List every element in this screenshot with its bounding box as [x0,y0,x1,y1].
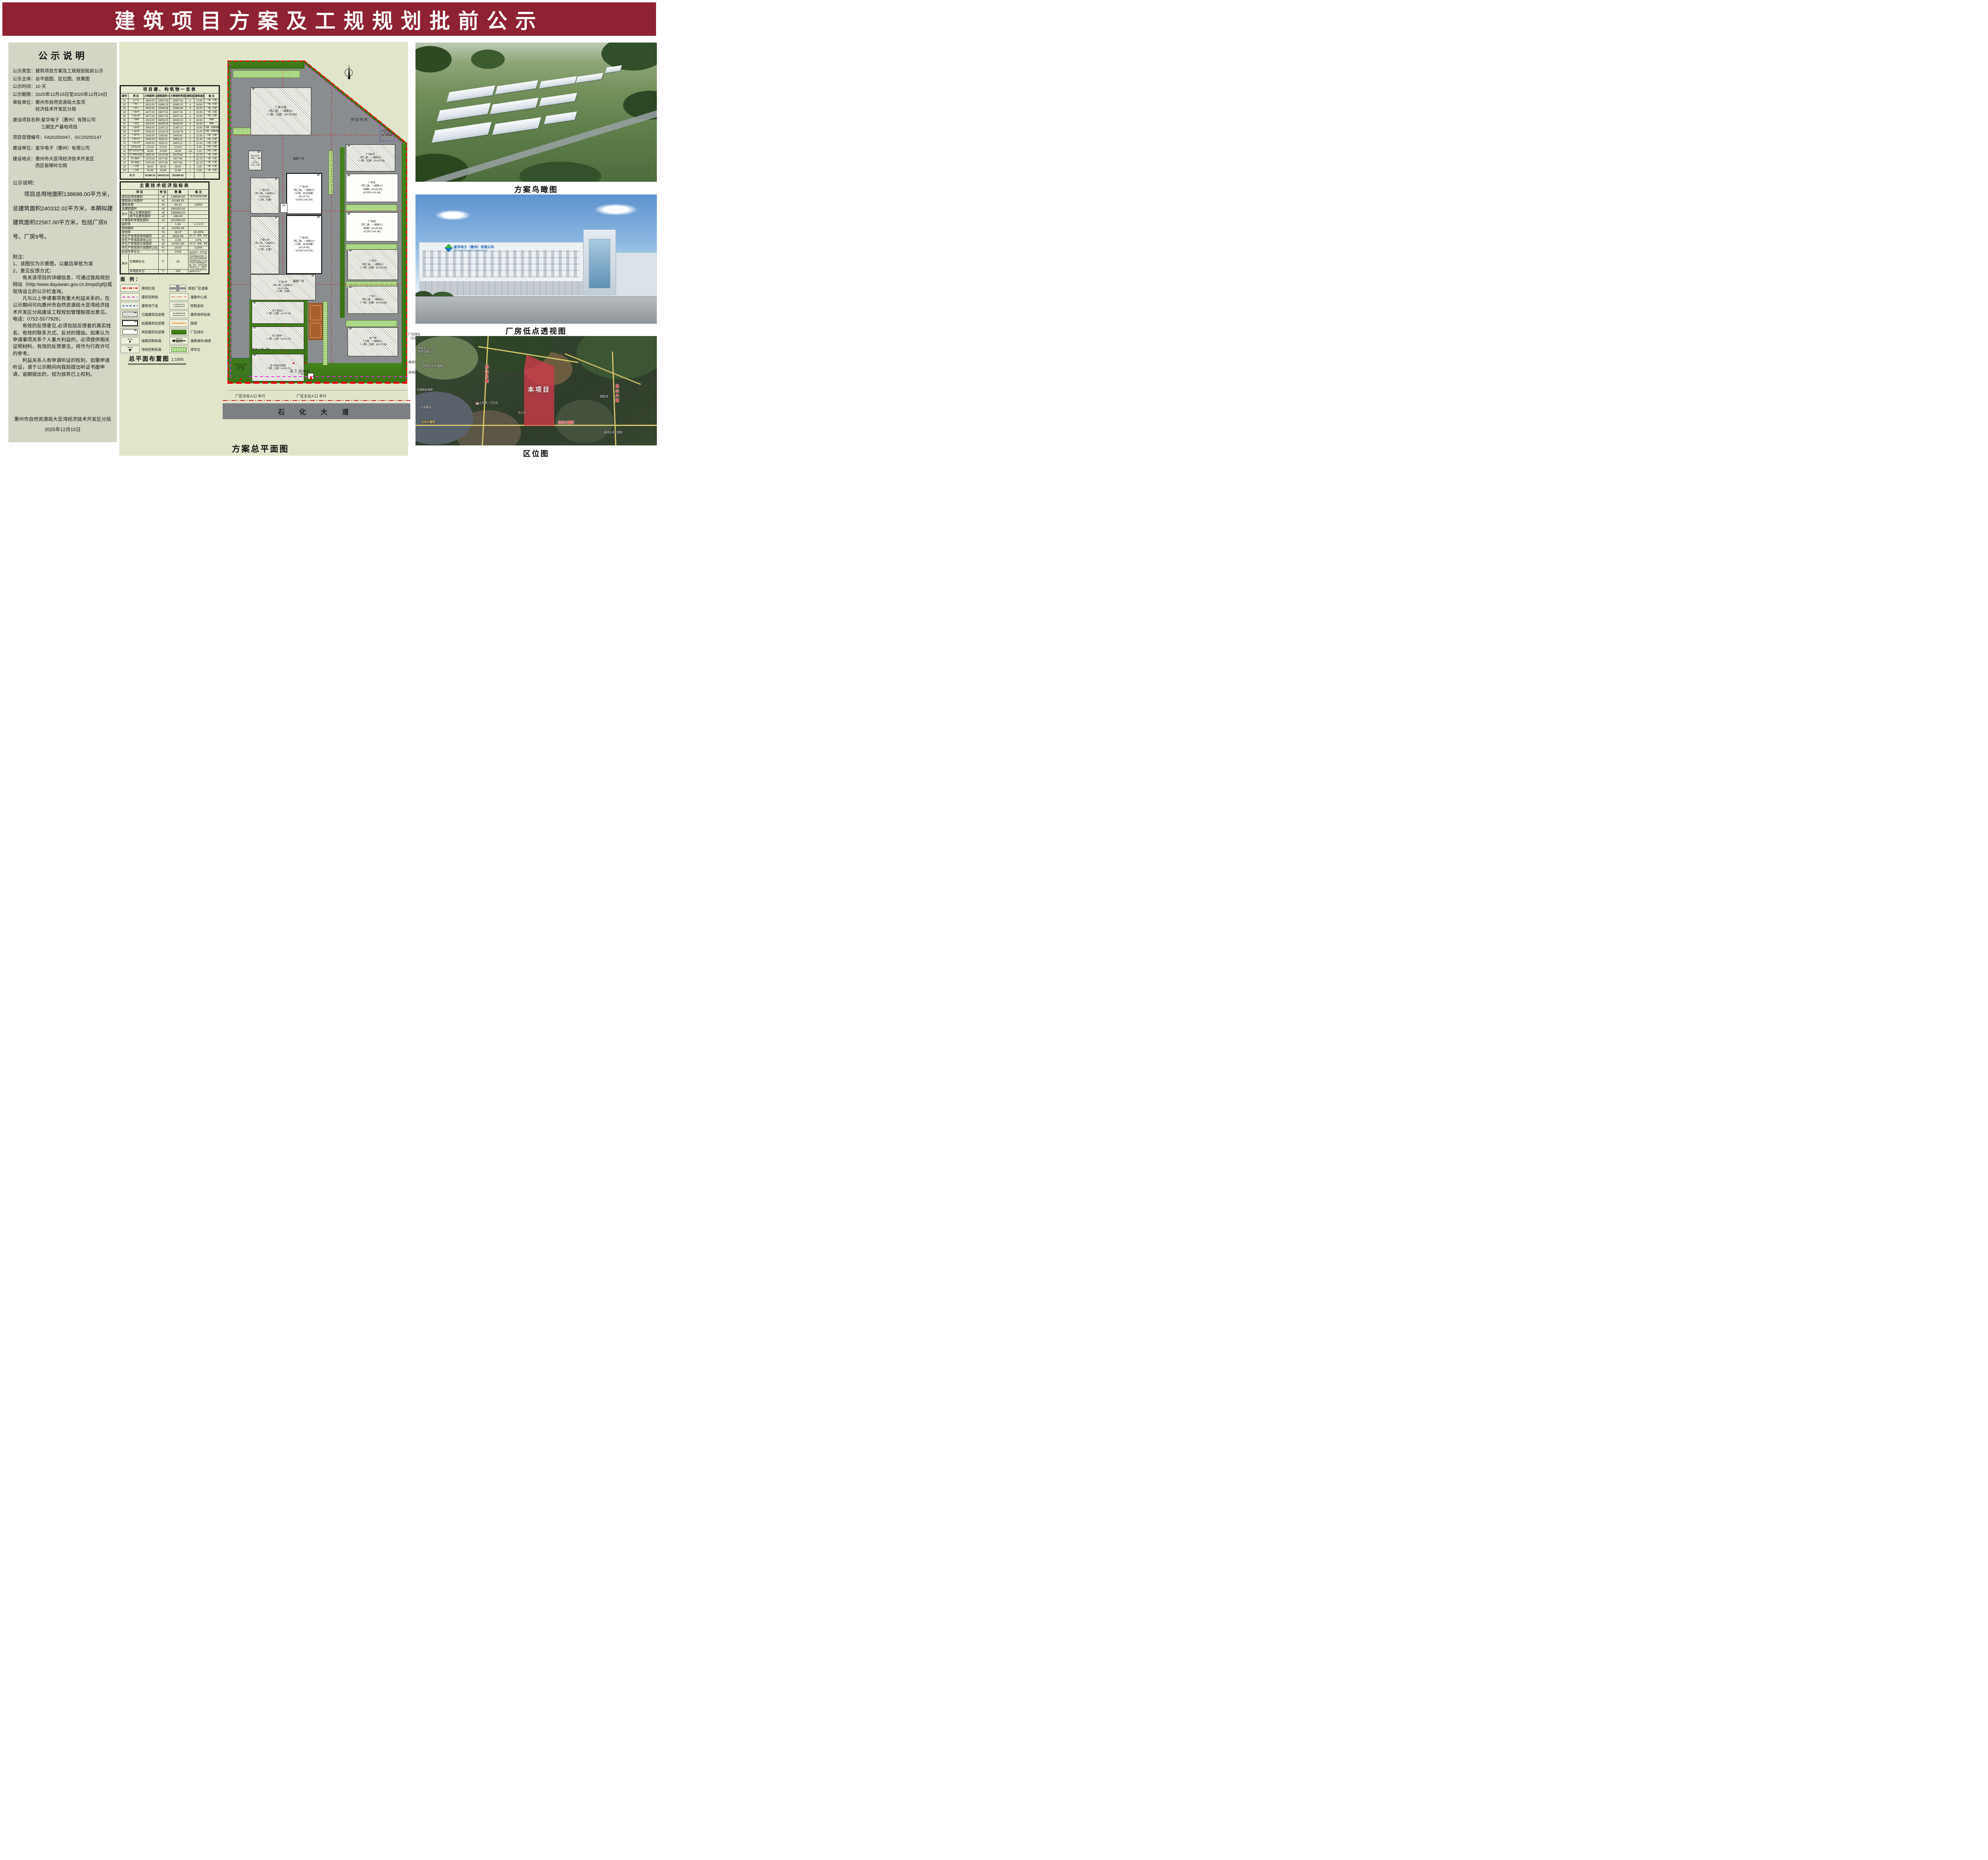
legend-label: 控制坐标 [190,303,204,308]
proposed-building-icon: 1F [120,319,140,327]
page-title: 建筑项目方案及工规规划批前公示 [115,4,544,34]
building-row: 13 化学品仓库 273.00 273.00 273.00 1 5.00 二期，… [121,146,219,150]
legend-item-site-elev: 40.00场地控制标高 [120,345,166,354]
col-unit: 单 位 [159,190,168,195]
cell-name: 化学品仓库 [128,146,144,150]
cell-gfa: 273.00 [157,146,170,150]
ind-label: 非生产性用房计容面积占比 [121,246,159,250]
cell-floors: 8 [186,118,194,122]
cell-note: 一期，已建 [204,165,219,169]
building-main-factory: 4F主厂房 （丁类，一级耐火） （一期，已建）(H=17.85) [348,327,398,356]
floor-tag: 4F [134,312,137,315]
cell-no: 04 [121,111,128,115]
ind-value: 138696.00 [168,195,188,199]
legend-label: 拟建建筑及层数 [142,321,165,326]
field-site: 建设地点：惠州市大亚湾经济技术开发区 西区板樟岭北侧 [13,156,113,170]
issue-date: 2025年12月15日 [8,426,117,433]
cell-far-area: 18597.63 [170,99,186,103]
field-value: 星华电子（惠州）有限公司 [35,145,90,152]
cell-floors: 1 [186,165,194,169]
cell-height: 20.00 [194,107,204,111]
map-road-label: 龙山六路 [615,384,620,403]
reserved-land-label: 预留用地 [345,117,374,122]
planned-building-icon: 4F [120,328,140,336]
cell-floors: 2 [186,130,194,134]
note-line: 有效的反馈意见,必须包括反馈者的真实姓名、有效的联系方式、反对的理由。如果认为申… [13,323,113,357]
ind-note: ≤15% [188,246,209,250]
entrance-marker: ▲ [304,361,307,365]
indicators-header: 项 目 单 位 数 量 备 注 [121,190,209,195]
cell-name: 厂房6号 [128,111,144,115]
col-far-area: 计算容积率面积㎡ [170,93,186,99]
cell-footprint: 5493.00 [144,126,157,130]
building-row: 02 厂房二 4523.00 18360.23 18360.23 4 19.65… [121,103,219,107]
cell-far-area: 51.66 [170,169,186,173]
total-empty-3 [204,173,219,179]
ind-row: 建筑物占地面积㎡61189.35 [121,199,209,203]
building-row: 08 厂房8号 5493.00 11367.22 11367.22 2 14.6… [121,126,219,130]
cell-note: 二期，已建 [204,142,219,146]
field-value: 10 天 [35,84,46,91]
cell-no: 16 [121,157,128,161]
cell-far-area: 11219.78 [170,130,186,134]
ind-label: 无障碍车位 [128,254,158,269]
total-empty-2 [194,173,204,179]
building-factory-5: 8F厂房五 （丙二类，一级耐火） （四期）(H=43.90) ±0.000 (=… [346,174,398,202]
cell-height: 3.10 [194,149,204,153]
building-row: 15 员工宿舍及食堂 3695.00 19178.82 19178.82 7 2… [121,153,219,157]
field-period: 公示期限：2025年12月15日至2025年12月24日 [13,91,113,99]
col-no: 编号 [121,93,128,99]
cloud [435,210,471,220]
field-duration: 公示时间：10 天 [13,84,113,91]
logo-en: Star China Electronic (Hui Zhou) Ltd [454,249,494,252]
site-plan: 4F厂房10号 （丙二类，一级耐火） （一期，已建）(H=20.95) 1F化学… [227,60,407,388]
legend-label: 停车位 [190,347,200,352]
cell-footprint: 3200.00 [144,134,157,138]
cell-no: 08 [121,126,128,130]
ind-note: 合计约208.04亩 [188,195,209,199]
slope-icon: 道路纵坡道路长度 [169,337,188,344]
field-value: 惠州市大亚湾经济技术开发区 西区板樟岭北侧 [35,156,94,170]
site-plan-caption-text: 总平面布置图 [129,356,169,362]
road-name: 石 化 大 道 [278,406,355,416]
building-label: 厂房五 （丙二类，一级耐火） （四期）(H=43.90) ±0.000 (=41… [359,181,384,194]
issuing-org: 惠州市自然资源局大亚湾经济技术开发区分局 [8,415,117,422]
legend-item-slope: 道路纵坡道路长度道路坡向/坡度 [169,336,213,345]
map-road-diagonal [565,353,641,385]
building-row: 09 厂房9号 5400.00 11219.78 11219.78 2 14.7… [121,130,219,134]
cell-floors: 1 [186,146,194,150]
ind-unit [159,223,168,227]
parking-icon [169,346,188,353]
buildings-table: 项目建、构筑物一览表 编号 项 目 占地面积㎡ 建筑面积㎡ 计算容积率面积㎡ 建… [120,85,220,180]
red-boundary-left [227,60,229,383]
factory-logo: 星华电子（惠州）有限公司Star China Electronic (Hui Z… [446,245,494,252]
ind-value: 5932.66 [168,234,188,238]
ind-label: 计算容积率建筑面积 [121,219,159,223]
control-line-bottom [249,376,407,377]
ind-label: 规划总用地面积 [121,195,159,199]
cell-height: 5.00 [194,146,204,150]
ind-value: 37421.80 [168,242,188,246]
floor-tag: 1F [274,179,278,181]
cell-height: 43.90 [194,118,204,122]
basketball-court [309,303,323,340]
cell-name: 员工宿舍二 [128,161,144,165]
total-gfa: 240332.02 [157,173,170,179]
perspective-image: 星华电子（惠州）有限公司Star China Electronic (Hui Z… [415,194,657,324]
legend-label: 用地红线 [142,286,155,291]
legend-item-fence: 围墙 [169,319,213,327]
road-centerline [223,400,410,401]
control-coords-icon: X=2613453.570Y=39448814.861 [169,302,188,309]
ind-value: 44.12 [168,203,188,207]
building-label: 地下生活/生产/消防 水池及泵房 （二期，已建） [233,363,247,371]
cloud [594,204,638,216]
cell-footprint: 38.69 [144,149,157,153]
ind-row: 总建筑面积㎡240332.02 [121,207,209,211]
cell-note: 二期，已建 [204,146,219,150]
legend-item-parking: 停车位 [169,345,213,354]
floor-tag: 8F [347,213,351,216]
cell-no: 09 [121,130,128,134]
cell-far-area: 8453.12 [170,142,186,146]
building-row: 11 厂房11号 4200.00 4253.12 8453.12 1 11.20… [121,138,219,142]
floor-tag: 4F [347,145,351,148]
building-row: 06 厂房四 4523.00 36435.00 36435.00 8 43.90… [121,118,219,122]
building-row: 07 厂房五 4523.00 36435.00 36435.00 8 43.90… [121,122,219,126]
building-factory-4: 8F厂房四 （丙二类，一级耐火） （四期）(H=43.90) ±0.000 (=… [346,212,398,241]
field-value: FA20250047、GC20250147 [45,134,102,142]
legend-label: 建筑控制线 [142,295,158,299]
building-dorm-2: 7F员工宿舍二 （一期，已建）(H=22.75) [252,301,304,324]
ind-row: 非生产性用房用地占比%4.28≤7% [121,238,209,242]
perspective-caption: 厂房低点透视图 [415,325,657,336]
cell-gfa: 18597.63 [157,99,170,103]
underground-water-pool: 地下生活/生产/消防 水池及泵房 （二期，已建） [231,358,250,376]
red-boundary-right [406,143,407,383]
ind-row: 规划总用地面积㎡138696.00合计约208.04亩 [121,195,209,199]
col-floors: 建筑层数 [186,93,194,99]
col-note: 备 注 [188,190,209,195]
cell-name: 地下生活/生产/消防水池及泵房 [128,149,144,153]
cell-floors: 7 [186,157,194,161]
total-empty-1 [186,173,194,179]
site-elevation-icon: 40.00 [120,346,140,353]
ind-row: 非生产性用房计容面积占比%14.87≤15% [121,246,209,250]
ind-note: 1.2-2.0 [188,223,209,227]
side-wing [616,253,657,295]
building-factory-2: 4F厂房二 （丙二类，一级耐火） （一期，已建）(H=19.65) [348,286,398,314]
parking-note: 地上停车位；生产区设施停车位＞0.3个/100平方米建筑面积计算；行政办公及生活… [188,250,209,274]
ind-row: 非生产性用房计容面积㎡37421.80含门卫、宿舍、食堂 [121,242,209,246]
ind-value: 22293.46 [168,226,188,230]
ind-unit: 个 [159,270,168,274]
ind-label: 地上总建筑面积 [128,211,158,215]
cell-note: 一期，已建 [204,169,219,173]
field-value: 2025年12月15日至2025年12月24日 [35,91,107,99]
logo-cn: 星华电子（惠州）有限公司 [454,245,494,249]
field-builder: 建设单位：星华电子（惠州）有限公司 [13,145,113,152]
cell-gfa: 3240.63 [157,134,170,138]
ind-unit: ㎡ [159,219,168,223]
legend-title: 图 例： [120,276,213,282]
cell-floors: 4 [186,99,194,103]
cell-far-area: 6440.63 [170,134,186,138]
ind-note: ≥30% [188,203,209,207]
road-axis [331,70,332,363]
cell-footprint: 4523.00 [144,122,157,126]
building-factory-11: 1F厂房11号 （丙二类，二级耐火） H=11.20m （二期，已建） [250,178,279,214]
cell-no: 11 [121,138,128,142]
site-plan-scale: 1:1000 [171,358,184,362]
parking-strip [346,204,397,212]
floor-tag: 7F [253,355,256,357]
floor-tag: 2F [316,174,320,177]
corridor-label: 连廊 [280,203,287,212]
floor-tag: 1F [134,321,137,323]
aerial-view-image [415,43,657,182]
cell-height: 17.85 [194,99,204,103]
building-chem-warehouse: 1F化学品仓库 （甲类，一级耐火） H=5.00m （二期，已建） [248,151,262,170]
legend-label: 厂区绿化 [190,330,204,334]
cell-gfa: 36435.00 [157,122,170,126]
road-centerline-icon [169,293,188,301]
cell-note: 一期，已建 [204,115,219,119]
location-caption: 区位图 [415,448,657,459]
map-road-label: 石化大道西 [421,421,435,424]
ind-value: 61189.35 [168,199,188,203]
cell-no: 17 [121,161,128,165]
cell-height: 11.10 [194,142,204,146]
building-dorm-1: 7F员工宿舍一 （一期，已建）(H=22.75) [252,327,304,350]
parking-strip [346,320,397,327]
building-factory-3: 4F厂房三 （丙二类，一级耐火） （一期，已建）(H=20.00) [348,249,398,280]
ind-value: 20 [168,254,188,269]
floor-tag: 7F [253,327,256,330]
legend-item-coords: X=2613453.570Y=39448814.861控制坐标 [169,301,213,310]
parking-strip [323,301,328,365]
red-boundary-bottom [227,382,407,384]
floor-tag: 4F [349,250,352,253]
notes-list: 1、该图仅为示意图，以最后审批为准2、意见反馈方式： 有关该项目的详细信息，可通… [13,260,113,378]
cell-floors: 4 [186,107,194,111]
field-label: 建设地点： [13,156,35,170]
buildings-table-title: 项目建、构筑物一览表 [121,86,219,93]
note-line: 2、意见反馈方式： [13,268,113,274]
cell-note: 三期，本期拟建 [204,130,219,134]
cell-note: 一期，已建 [204,153,219,157]
note-line: 利益关系人有申请听证的权利，如需申请听证，请于公示期间向我局提出听证书面申请，逾… [13,357,113,378]
cell-far-area: 19178.82 [170,153,186,157]
ind-label: 建筑系数 [121,203,159,207]
total-far-area: 251596.02 [170,173,186,179]
cell-far-area: 19877.91 [170,115,186,119]
cell-far-area: 11367.22 [170,126,186,130]
legend-label: 建筑地下室 [142,303,158,308]
cell-floors: -1/1 [186,149,194,153]
legend-item-red-line: 用地红线 [120,284,166,292]
cell-gfa: 19178.82 [157,153,170,157]
cell-note: 四期 [204,122,219,126]
cell-far-area: 18344.98 [170,107,186,111]
col-note: 备 注 [204,93,219,99]
ind-unit: ㎡ [159,234,168,238]
ind-qizhong: 其中 [121,211,129,219]
cell-height: 22.75 [194,161,204,165]
ind-unit: ㎡ [159,211,168,215]
cell-no: 03 [121,107,128,111]
cell-no: 14 [121,149,128,153]
ind-unit: % [159,238,168,242]
ind-note: 含门卫、宿舍、食堂 [188,242,209,246]
field-value: 总平面图、区位图、效果图 [35,76,90,83]
cell-height: 11.00 [194,134,204,138]
ind-row: 机动车停车位个1018地上停车位；生产区设施停车位＞0.3个/100平方米建筑面… [121,250,209,254]
ind-value: 14.87 [168,246,188,250]
notice-info-panel: 公示说明 公示类型：建筑项目方案及工规规划批前公示 公示主体：总平面图、区位图、… [8,43,117,442]
col-height: 建筑高度m [194,93,204,99]
legend-label: 道路中心线 [190,295,207,299]
field-label: 建设单位： [13,145,35,152]
cell-floors: 4 [186,115,194,119]
col-qty: 数 量 [168,190,188,195]
field-label: 公示期限： [13,91,35,99]
cell-gfa: 19877.91 [157,111,170,115]
aerial-caption: 方案鸟瞰图 [415,184,657,194]
cell-note: 一期，已建 [204,161,219,165]
red-line-icon [120,284,140,292]
legend-label: 规划建筑及层数 [142,330,165,334]
entrance-tower [583,229,616,295]
ind-label: 总建筑面积 [121,207,159,211]
map-road-label: 龙山五路 [484,365,489,384]
ind-value: 1018 [168,250,188,254]
cell-footprint: 4200.00 [144,142,157,146]
cell-footprint: 4200.00 [144,138,157,142]
project-site-label: 本项目 [528,384,550,394]
cell-name: 厂房四 [128,118,144,122]
cell-floors: 7 [186,153,194,157]
building-label: 主厂房 （丁类，一级耐火） （一期，已建）(H=17.85) [359,337,387,347]
map-poi: 东部蔚蓝海岸 [417,389,433,392]
legend-item-proposed: 1F拟建建筑及层数 [120,319,166,327]
field-label: 建设项目名称: [13,117,41,131]
building-row: 14 地下生活/生产/消防水池及泵房 38.69 374.69 38.69 -1… [121,149,219,153]
cell-no: 06 [121,118,128,122]
cell-far-area: 8453.12 [170,138,186,142]
floor-tag: 8F [347,175,351,177]
building-row: 10 厂房7号 3200.00 3240.63 6440.63 1 11.00 … [121,134,219,138]
cell-floors: 4 [186,103,194,107]
cell-footprint: 36.00 [144,165,157,169]
ind-note [188,199,209,203]
cell-name: 员工宿舍及食堂 [128,153,144,157]
building-label: 厂房11号 （丙二类，二级耐火） H=11.20m （二期，已建） [253,189,277,202]
cell-far-area: 19877.91 [170,111,186,115]
cell-height: 43.90 [194,122,204,126]
side-entrance-label: 厂区次出入口 车行 [235,393,265,398]
building-row: 01 主厂房 4606.00 18597.63 18597.63 4 17.85… [121,99,219,103]
cell-floors: 1 [186,142,194,146]
cell-footprint: 3695.00 [144,153,157,157]
cell-footprint: 4606.00 [144,99,157,103]
ind-label: 机动车停车位 [121,250,159,254]
cell-gfa: 4253.12 [157,138,170,142]
map-poi: 天润嘉园 [420,406,431,409]
legend-item-basement: 建筑地下室 [120,301,166,310]
ind-label: 绿地率 [121,230,159,234]
legend-label: 围墙 [190,321,197,326]
window-grid [423,250,579,277]
cell-no: 15 [121,153,128,157]
description-text: 项目总用地面积138696.00平方米，总建筑面积240332.02平方米，本期… [13,188,113,244]
field-value: 惠州市自然资源局大亚湾 经济技术开发区分局 [35,99,85,113]
building-dorm-canteen: 7F员工宿舍及食堂 （一期，已建）(H=22.75) [252,354,304,381]
ind-row: 绿地率%16.0715-20% [121,230,209,234]
cell-height: 20.95 [194,111,204,115]
plant-road-icon [169,285,186,292]
dimension-line [227,390,407,391]
cell-floors: 4 [186,111,194,115]
floor-tag: 1F [274,217,278,220]
cell-height: 14.70 [194,130,204,134]
cell-gfa: 9077.66 [157,157,170,161]
col-item: 项 目 [128,93,144,99]
cell-no: 19 [121,169,128,173]
cell-no: 12 [121,142,128,146]
cell-footprint: 4523.00 [144,103,157,107]
ind-value: 4.28 [168,238,188,242]
building-row: 03 厂房三 4523.00 18344.98 18344.98 4 20.00… [121,107,219,111]
cell-height: 20.95 [194,115,204,119]
cell-floors: 7 [186,161,194,165]
legend-item-road-elev: 40.65道路控制标高 [120,336,166,345]
cell-footprint: 4523.00 [144,107,157,111]
building-label: 厂房三 （丙二类，一级耐火） （一期，已建）(H=20.00) [359,260,387,270]
cell-gfa: 11219.78 [157,130,170,134]
cell-height: 3.35 [194,169,204,173]
fence-icon [169,319,188,327]
building-row: 04 厂房6号 4877.00 19877.91 19877.91 4 20.9… [121,111,219,115]
cell-note: 一期，已建 [204,103,219,107]
building-row: 18 门卫室 36.00 36.00 36.00 1 3.35 一期，已建 [121,165,219,169]
ind-value: 336.00 [168,215,188,219]
ind-unit: % [159,246,168,250]
field-approver: 审批单位：惠州市自然资源局大亚湾 经济技术开发区分局 [13,99,113,113]
cell-name: 厂房12号 [128,142,144,146]
legend: 图 例： 用地红线 建筑控制线 建筑地下室 4F已建建筑及层数 1F拟建建筑及层… [120,276,213,354]
ind-label: 绿地面积 [121,226,159,230]
slope-bottom-text: 道路长度 [176,341,182,343]
floor-elevation-icon: ±0.000=40.30 [169,311,188,318]
ind-label: 非生产性用房用地面积 [121,234,159,238]
floor-tag: 2F [316,216,320,219]
cell-no: 18 [121,165,128,169]
cell-note: 二期，已建 [204,138,219,142]
building-label: 厂房8号 （丙二类，一级耐火） （三期、本次拟建） (H=14.60) ±0.0… [292,237,316,253]
building-label: 厂房12号 （丙二类，二级耐火） H=11.10m （二期，已建） [253,239,277,251]
cell-floors: 1 [186,138,194,142]
cell-far-area: 9077.66 [170,157,186,161]
cell-name: 厂房二 [128,103,144,107]
cell-name: 员工宿舍一 [128,157,144,161]
clinic-cross-icon: ✚ [476,402,479,404]
ind-value: 239996.02 [168,211,188,215]
ind-row: 建筑系数%44.12≥30% [121,203,209,207]
ind-note: 15-20% [188,230,209,234]
